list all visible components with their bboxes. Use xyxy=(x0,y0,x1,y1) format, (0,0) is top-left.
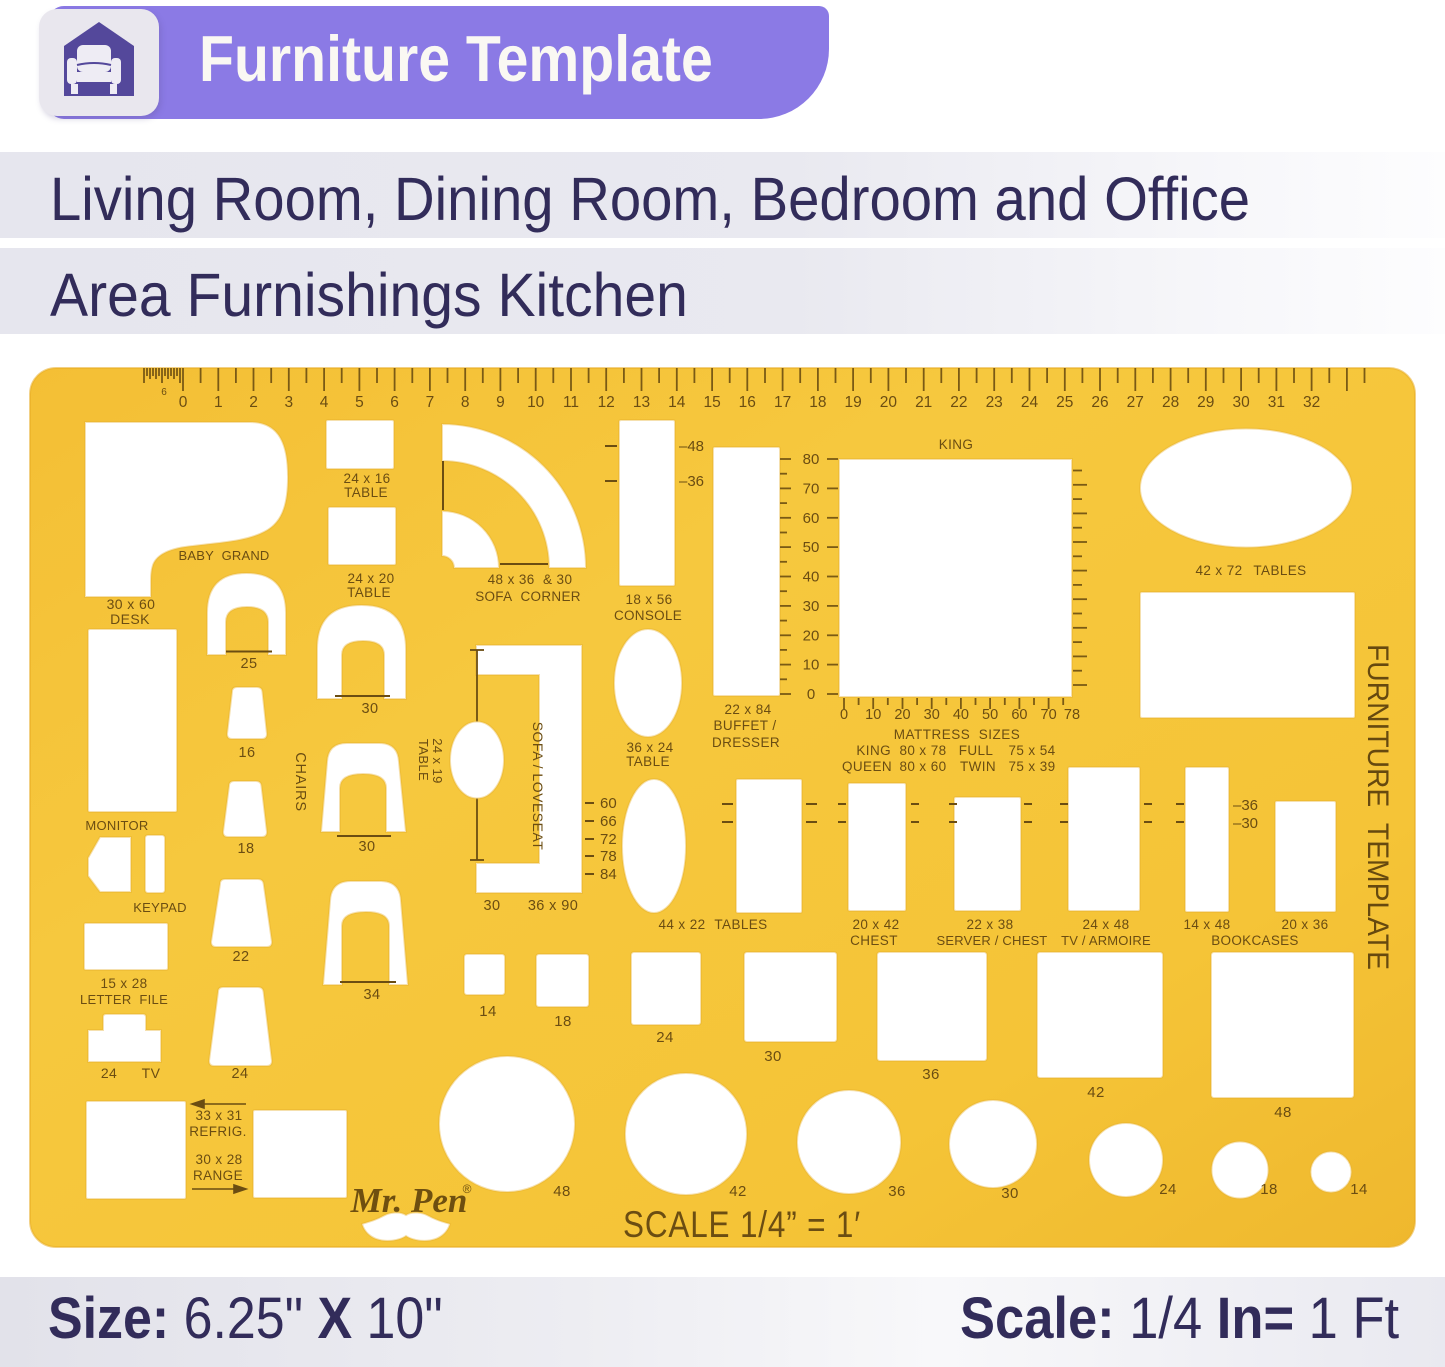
svg-text:FURNITURE TEMPLATE: FURNITURE TEMPLATE xyxy=(1361,644,1394,970)
svg-text:LETTER FILE: LETTER FILE xyxy=(80,992,168,1007)
svg-text:26: 26 xyxy=(1091,394,1108,411)
svg-text:18: 18 xyxy=(554,1013,572,1030)
svg-text:36 x 24: 36 x 24 xyxy=(626,740,673,755)
svg-text:12: 12 xyxy=(598,394,615,411)
svg-text:70: 70 xyxy=(803,480,820,497)
svg-text:24: 24 xyxy=(1159,1181,1177,1198)
svg-text:TWIN: TWIN xyxy=(960,759,996,774)
svg-text:BABY GRAND: BABY GRAND xyxy=(178,548,269,563)
svg-text:23: 23 xyxy=(986,394,1003,411)
svg-text:7: 7 xyxy=(426,394,435,411)
svg-text:16: 16 xyxy=(239,745,256,761)
svg-text:24 x 19: 24 x 19 xyxy=(430,738,445,783)
svg-text:22: 22 xyxy=(233,949,250,965)
svg-text:40: 40 xyxy=(953,707,969,723)
svg-text:70: 70 xyxy=(1041,707,1057,723)
svg-text:20 x 36: 20 x 36 xyxy=(1281,917,1328,932)
svg-text:17: 17 xyxy=(774,394,791,411)
svg-text:30: 30 xyxy=(764,1048,782,1065)
svg-text:18: 18 xyxy=(238,841,255,857)
svg-text:10: 10 xyxy=(803,657,820,674)
svg-text:DRESSER: DRESSER xyxy=(712,735,780,750)
svg-text:60: 60 xyxy=(600,795,617,812)
svg-text:RANGE: RANGE xyxy=(193,1168,243,1183)
svg-text:25: 25 xyxy=(241,656,258,672)
svg-text:6: 6 xyxy=(161,387,167,398)
svg-text:22: 22 xyxy=(950,394,967,411)
svg-text:TABLE: TABLE xyxy=(416,739,431,781)
svg-text:0: 0 xyxy=(807,686,815,703)
svg-text:0: 0 xyxy=(179,394,188,411)
svg-text:18: 18 xyxy=(809,394,826,411)
svg-text:TV: TV xyxy=(142,1065,161,1081)
svg-text:BOOKCASES: BOOKCASES xyxy=(1211,933,1298,948)
svg-text:24 x 20: 24 x 20 xyxy=(347,571,394,586)
svg-text:30: 30 xyxy=(924,707,940,723)
svg-text:22 x 84: 22 x 84 xyxy=(724,702,771,717)
svg-text:TABLES: TABLES xyxy=(714,917,767,932)
svg-text:5: 5 xyxy=(355,394,364,411)
svg-text:19: 19 xyxy=(844,394,861,411)
svg-text:3: 3 xyxy=(284,394,293,411)
svg-text:MONITOR: MONITOR xyxy=(85,818,148,833)
svg-text:48: 48 xyxy=(1274,1104,1292,1121)
svg-text:15 x 28: 15 x 28 xyxy=(100,976,147,991)
svg-text:60: 60 xyxy=(803,510,820,527)
svg-text:MATTRESS SIZES: MATTRESS SIZES xyxy=(894,727,1021,742)
svg-text:34: 34 xyxy=(364,987,381,1003)
svg-text:75 x 54: 75 x 54 xyxy=(1008,743,1055,758)
svg-text:30: 30 xyxy=(803,598,820,615)
svg-text:20: 20 xyxy=(880,394,898,411)
svg-text:DESK: DESK xyxy=(110,611,150,627)
svg-text:42: 42 xyxy=(1087,1084,1105,1101)
svg-text:16: 16 xyxy=(739,394,756,411)
svg-text:SOFA / LOVESEAT: SOFA / LOVESEAT xyxy=(530,722,546,851)
svg-text:6: 6 xyxy=(390,394,399,411)
svg-text:4: 4 xyxy=(320,394,329,411)
svg-text:33 x 31: 33 x 31 xyxy=(195,1108,242,1123)
svg-text:42 x 72: 42 x 72 xyxy=(1195,563,1242,578)
svg-text:10: 10 xyxy=(527,394,545,411)
svg-text:21: 21 xyxy=(915,394,932,411)
svg-text:CHEST: CHEST xyxy=(850,933,898,948)
svg-text:48 x 36 & 30: 48 x 36 & 30 xyxy=(488,572,573,587)
svg-text:14: 14 xyxy=(479,1003,497,1020)
svg-text:20: 20 xyxy=(894,707,910,723)
svg-text:14 x 48: 14 x 48 xyxy=(1183,917,1230,932)
svg-text:1: 1 xyxy=(214,394,223,411)
svg-text:30: 30 xyxy=(1232,394,1250,411)
svg-text:24 x 16: 24 x 16 xyxy=(343,471,390,486)
svg-text:66: 66 xyxy=(600,813,617,830)
svg-text:31: 31 xyxy=(1268,394,1285,411)
svg-text:SERVER / CHEST: SERVER / CHEST xyxy=(937,933,1048,948)
svg-text:25: 25 xyxy=(1056,394,1073,411)
svg-text:13: 13 xyxy=(633,394,650,411)
svg-text:48: 48 xyxy=(553,1183,571,1200)
svg-text:50: 50 xyxy=(982,707,998,723)
svg-text:0: 0 xyxy=(840,707,848,723)
svg-text:42: 42 xyxy=(729,1183,747,1200)
svg-text:20: 20 xyxy=(803,627,820,644)
svg-text:29: 29 xyxy=(1197,394,1214,411)
svg-text:27: 27 xyxy=(1127,394,1144,411)
svg-text:BUFFET /: BUFFET / xyxy=(714,718,777,733)
svg-text:40: 40 xyxy=(803,569,820,586)
svg-text:18 x 56: 18 x 56 xyxy=(625,592,672,607)
svg-text:14: 14 xyxy=(1350,1181,1368,1198)
svg-text:80: 80 xyxy=(803,451,820,468)
svg-text:84: 84 xyxy=(600,866,617,883)
svg-text:–30: –30 xyxy=(1233,815,1258,832)
svg-text:24: 24 xyxy=(232,1066,249,1082)
svg-text:78: 78 xyxy=(1064,707,1080,723)
svg-text:24: 24 xyxy=(656,1029,674,1046)
svg-text:32: 32 xyxy=(1303,394,1320,411)
svg-text:80 x 60: 80 x 60 xyxy=(899,759,946,774)
svg-text:24: 24 xyxy=(1021,394,1039,411)
svg-text:20 x 42: 20 x 42 xyxy=(852,917,899,932)
svg-text:TABLES: TABLES xyxy=(1253,563,1306,578)
svg-text:22 x 38: 22 x 38 xyxy=(966,917,1013,932)
svg-text:®: ® xyxy=(463,1182,472,1196)
svg-text:TV / ARMOIRE: TV / ARMOIRE xyxy=(1061,933,1151,948)
svg-text:CONSOLE: CONSOLE xyxy=(614,608,682,623)
svg-text:15: 15 xyxy=(703,394,720,411)
svg-text:30 x 60: 30 x 60 xyxy=(107,596,156,612)
svg-text:72: 72 xyxy=(600,831,617,848)
svg-text:24: 24 xyxy=(101,1065,117,1081)
svg-text:36: 36 xyxy=(922,1066,940,1083)
svg-text:TABLE: TABLE xyxy=(344,485,388,500)
svg-text:24 x 48: 24 x 48 xyxy=(1082,917,1129,932)
svg-text:75 x 39: 75 x 39 xyxy=(1008,759,1055,774)
svg-text:QUEEN: QUEEN xyxy=(842,759,892,774)
svg-text:28: 28 xyxy=(1162,394,1179,411)
svg-text:9: 9 xyxy=(496,394,505,411)
svg-text:–36: –36 xyxy=(1233,797,1258,814)
svg-text:–36: –36 xyxy=(679,473,704,490)
svg-text:SOFA CORNER: SOFA CORNER xyxy=(475,589,581,604)
svg-text:44 x 22: 44 x 22 xyxy=(658,917,705,932)
svg-text:TABLE: TABLE xyxy=(347,585,391,600)
svg-text:CHAIRS: CHAIRS xyxy=(292,752,308,812)
svg-text:30: 30 xyxy=(484,898,501,914)
svg-text:18: 18 xyxy=(1260,1181,1278,1198)
svg-text:30: 30 xyxy=(1001,1185,1019,1202)
svg-text:36: 36 xyxy=(888,1183,906,1200)
svg-text:TABLE: TABLE xyxy=(626,754,670,769)
svg-text:50: 50 xyxy=(803,539,820,556)
svg-text:KING: KING xyxy=(856,743,891,758)
svg-text:8: 8 xyxy=(461,394,470,411)
svg-text:2: 2 xyxy=(249,394,258,411)
svg-text:KEYPAD: KEYPAD xyxy=(133,900,187,915)
svg-text:SCALE 1/4” = 1′: SCALE 1/4” = 1′ xyxy=(623,1205,861,1246)
svg-text:REFRIG.: REFRIG. xyxy=(189,1124,247,1139)
svg-text:36 x 90: 36 x 90 xyxy=(528,898,578,914)
svg-text:78: 78 xyxy=(600,848,617,865)
svg-text:30: 30 xyxy=(362,701,379,717)
svg-text:30 x 28: 30 x 28 xyxy=(195,1152,242,1167)
svg-text:30: 30 xyxy=(359,839,376,855)
svg-text:–48: –48 xyxy=(679,438,704,455)
svg-text:FULL: FULL xyxy=(959,743,994,758)
svg-text:KING: KING xyxy=(939,437,974,452)
svg-text:60: 60 xyxy=(1011,707,1027,723)
svg-text:11: 11 xyxy=(563,394,579,411)
svg-text:14: 14 xyxy=(668,394,686,411)
svg-text:80 x 78: 80 x 78 xyxy=(899,743,946,758)
svg-text:10: 10 xyxy=(865,707,881,723)
